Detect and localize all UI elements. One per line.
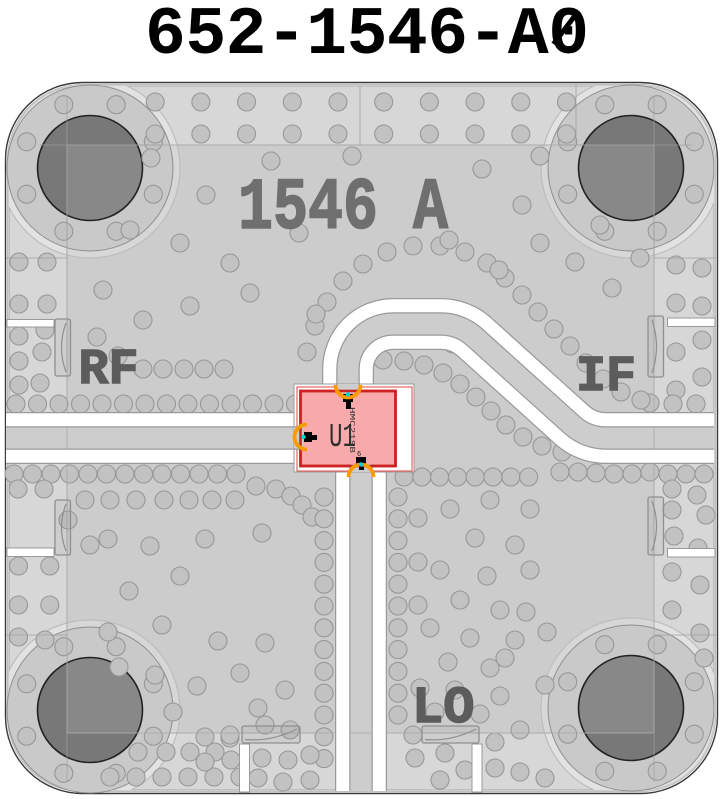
svg-text:RF: RF — [79, 342, 139, 399]
svg-text:652-1546-A0: 652-1546-A0 — [145, 0, 589, 74]
svg-text:IF: IF — [576, 349, 636, 406]
svg-text:HMC219B: HMC219B — [347, 407, 355, 454]
svg-text:1546 A: 1546 A — [238, 167, 448, 250]
svg-text:6: 6 — [357, 451, 361, 459]
